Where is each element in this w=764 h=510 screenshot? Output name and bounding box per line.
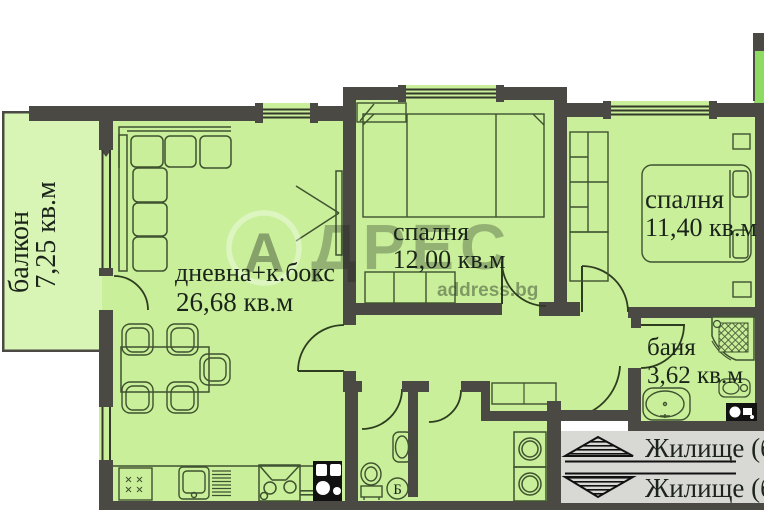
svg-text:3,62 кв.м: 3,62 кв.м	[647, 362, 743, 389]
svg-text:26,68 кв.м: 26,68 кв.м	[176, 287, 293, 317]
svg-text:дневна+к.бокс: дневна+к.бокс	[175, 258, 335, 287]
svg-text:спалня: спалня	[645, 184, 724, 214]
svg-text:address.bg: address.bg	[437, 280, 538, 301]
svg-text:12,00 кв.м: 12,00 кв.м	[393, 245, 506, 274]
svg-text:Б: Б	[393, 482, 402, 498]
svg-text:7,25 кв.м: 7,25 кв.м	[31, 181, 62, 289]
svg-text:11,40 кв.м: 11,40 кв.м	[645, 213, 757, 242]
svg-text:Жилище (б: Жилище (б	[645, 473, 764, 503]
svg-text:Жилище (б: Жилище (б	[645, 433, 764, 463]
svg-text:баня: баня	[647, 334, 696, 361]
svg-text:спалня: спалня	[393, 217, 469, 246]
